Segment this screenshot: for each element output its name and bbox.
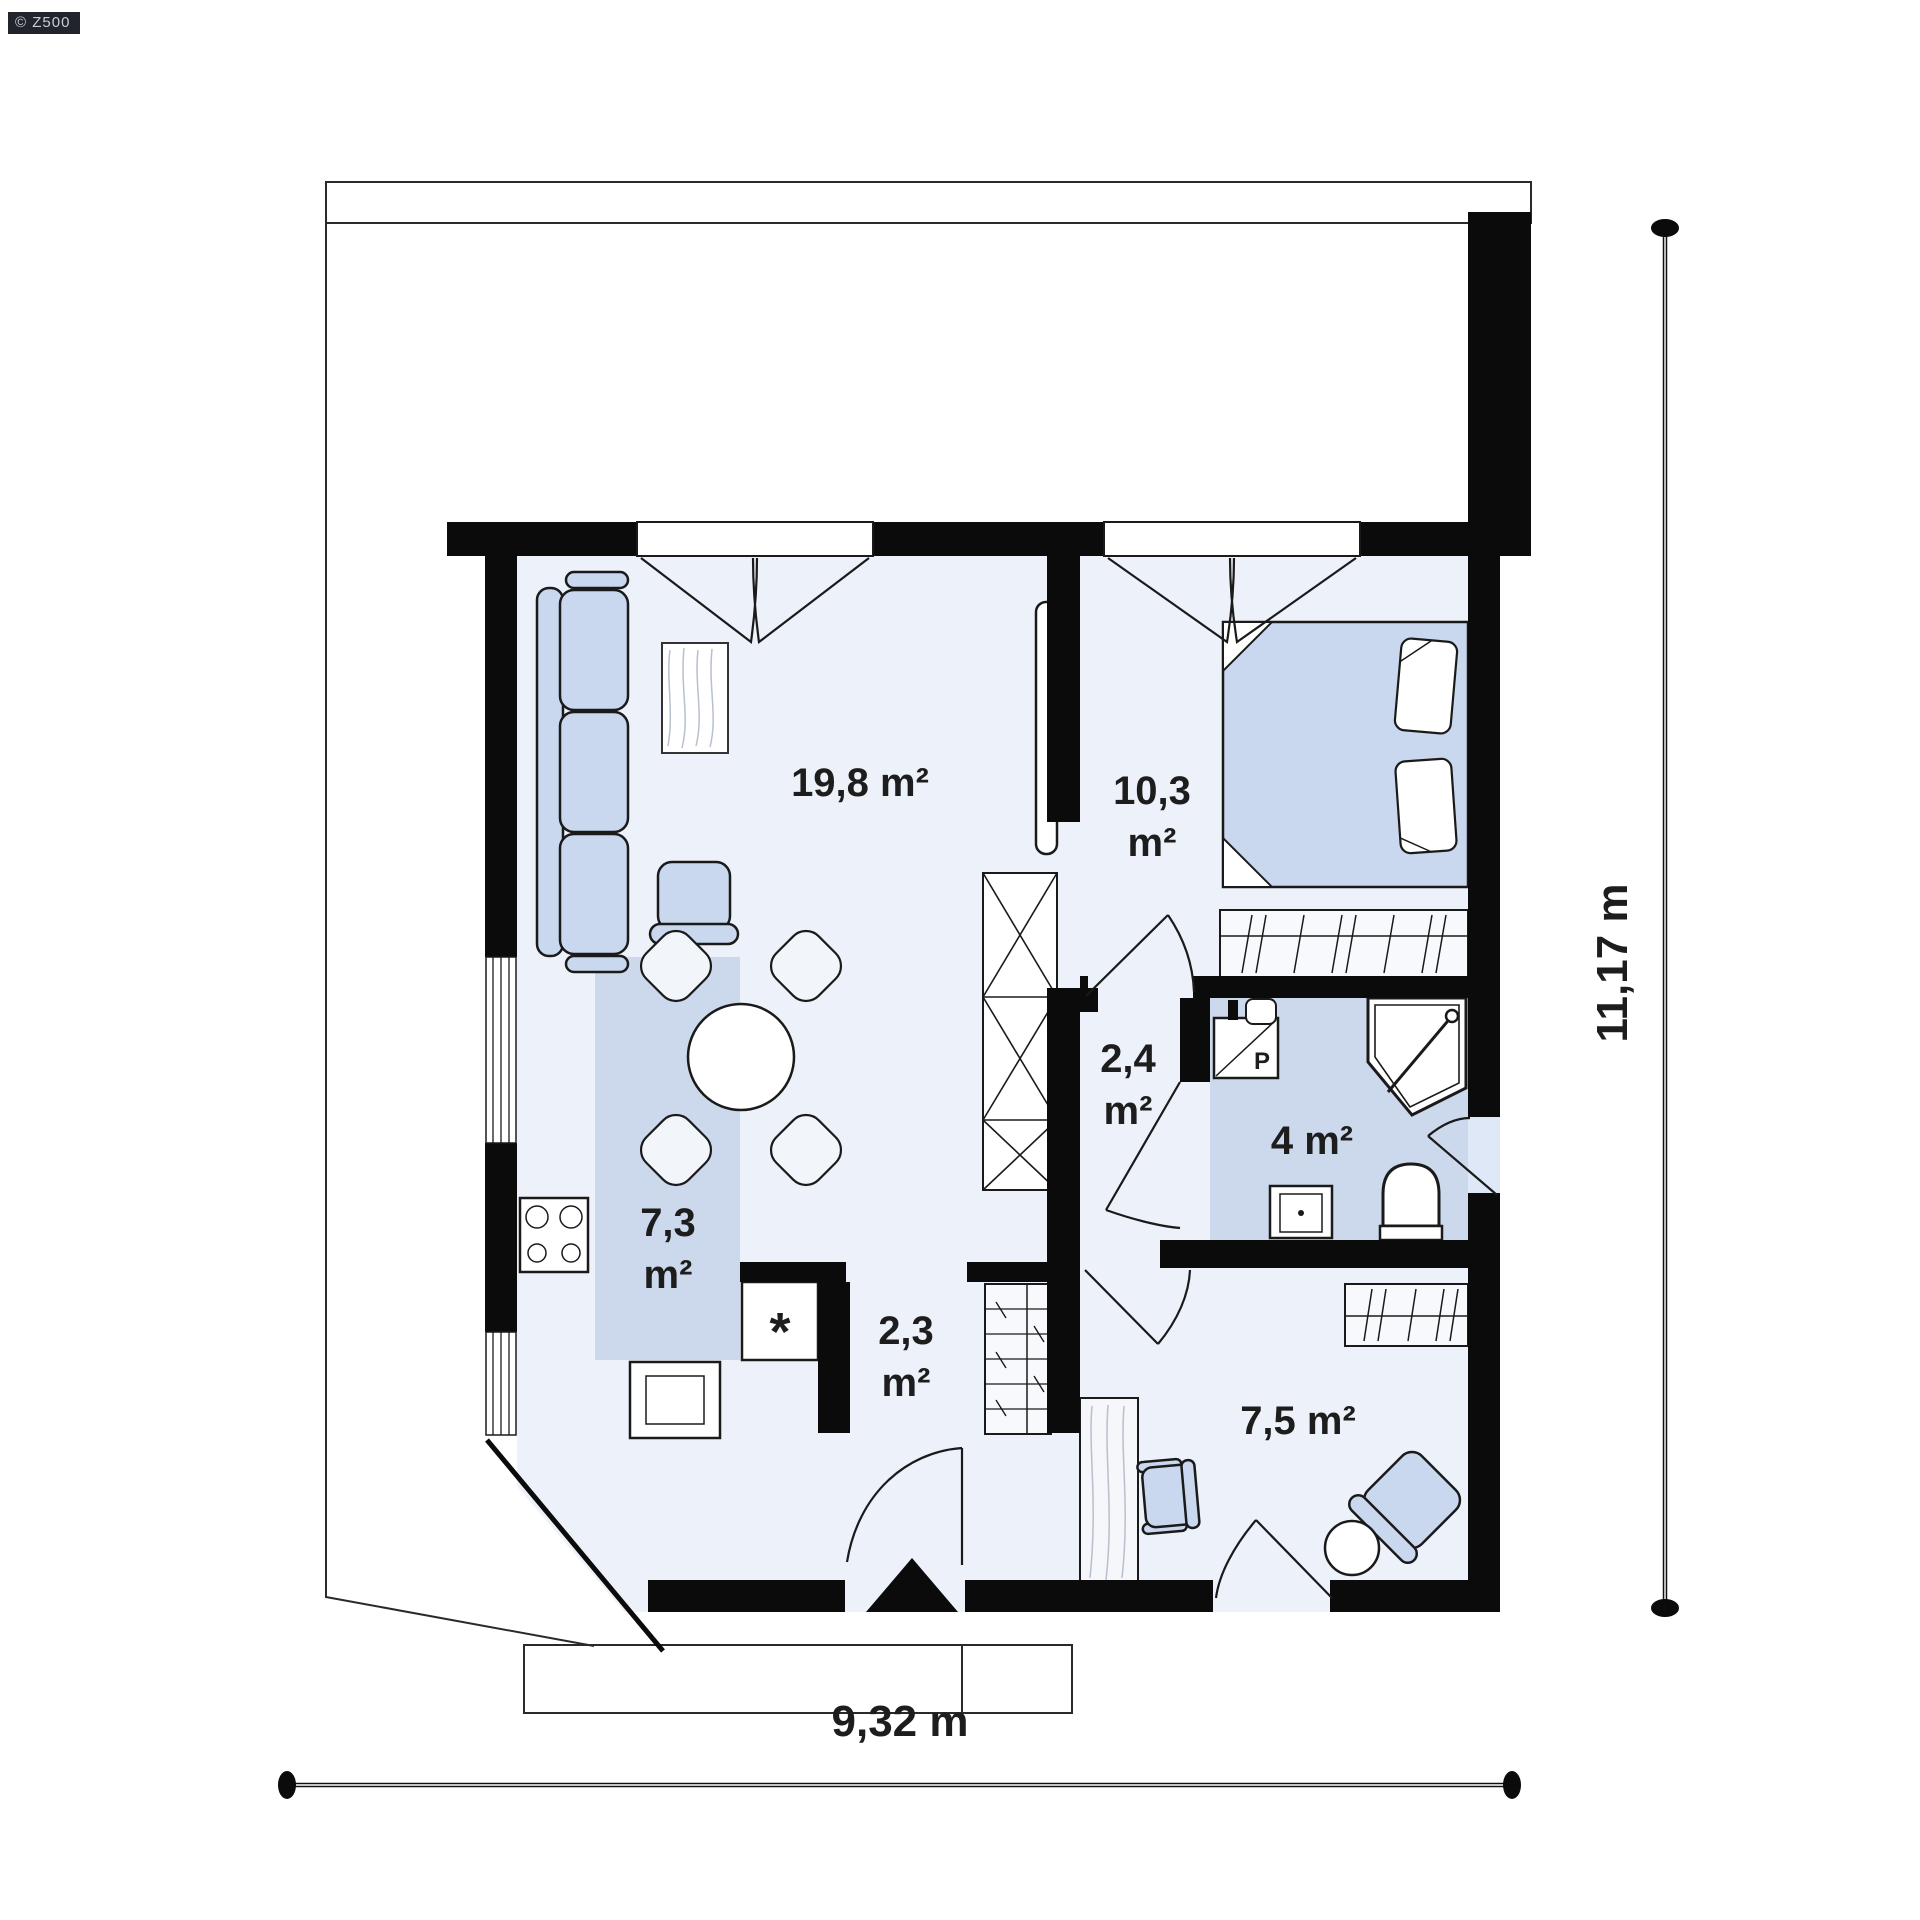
stove bbox=[520, 1198, 588, 1272]
sofa-cushion bbox=[560, 834, 628, 954]
dim-endpoint bbox=[1503, 1771, 1521, 1799]
bathroom-left-wall bbox=[1180, 998, 1210, 1082]
living-area-label: 19,8 m² bbox=[791, 761, 929, 805]
entry-left-wall bbox=[818, 1282, 850, 1433]
bathroom-bottom-wall bbox=[1160, 1240, 1500, 1268]
wardrobe-outline bbox=[1345, 1284, 1468, 1346]
office-chair bbox=[1137, 1458, 1200, 1535]
entry-top-wall-right bbox=[967, 1262, 1080, 1282]
bedroom-wardrobe bbox=[1220, 910, 1468, 978]
shaft bbox=[983, 873, 1057, 1190]
bedroom-bathroom-wall bbox=[1193, 976, 1468, 998]
chimney-wall-block bbox=[1468, 212, 1531, 556]
toilet-tank bbox=[1380, 1226, 1442, 1240]
shower-head bbox=[1446, 1010, 1458, 1022]
office-wardrobe bbox=[1345, 1284, 1468, 1346]
kitchen-area-label-2: m² bbox=[644, 1253, 693, 1297]
office-area-label: 7,5 m² bbox=[1240, 1399, 1356, 1443]
right-wall-upper bbox=[1468, 556, 1500, 1117]
armchair-seat bbox=[658, 862, 730, 930]
shaft-outline bbox=[983, 873, 1057, 1190]
dim-endpoint bbox=[1651, 1599, 1679, 1617]
bottom-wall-mid bbox=[965, 1580, 1213, 1612]
height-dim-label: 11,17 m bbox=[1588, 883, 1637, 1042]
roof-overhang-band bbox=[326, 182, 1531, 223]
bed bbox=[1223, 622, 1468, 887]
width-dim-label: 9,32 m bbox=[832, 1697, 969, 1746]
left-wall-upper bbox=[485, 556, 517, 957]
center-wall-lower bbox=[1047, 1012, 1080, 1433]
side-table bbox=[1325, 1521, 1379, 1575]
bedroom-area-label-1: 10,3 bbox=[1113, 769, 1191, 813]
sofa-armrest-top bbox=[566, 572, 628, 588]
rug bbox=[662, 643, 728, 753]
dim-endpoint bbox=[278, 1771, 296, 1799]
washer-label: P bbox=[1254, 1048, 1270, 1075]
bedroom-area-label-2: m² bbox=[1128, 821, 1177, 865]
armchair bbox=[650, 862, 738, 944]
sofa-cushion bbox=[560, 712, 628, 832]
rug-outline bbox=[662, 643, 728, 753]
kitchen-window-upper bbox=[486, 957, 516, 1143]
left-wall-mid bbox=[485, 1143, 517, 1332]
fridge-star-symbol: * bbox=[769, 1302, 790, 1362]
entry-closet bbox=[985, 1284, 1051, 1434]
dining-table bbox=[688, 1004, 794, 1110]
bottom-wall-right bbox=[1330, 1580, 1500, 1612]
sofa bbox=[537, 572, 628, 972]
bedroom-window bbox=[1104, 522, 1360, 556]
sink-counter bbox=[630, 1362, 720, 1438]
entry-top-wall-left bbox=[740, 1262, 846, 1282]
bottom-wall-left bbox=[648, 1580, 845, 1612]
pillow bbox=[1394, 638, 1458, 735]
faucet bbox=[1228, 1000, 1238, 1020]
bathroom-sink bbox=[1270, 1186, 1332, 1238]
living-window bbox=[637, 522, 873, 556]
entry-area-label-1: 2,3 bbox=[878, 1309, 934, 1353]
sofa-armrest-bottom bbox=[566, 956, 628, 972]
bathroom-doorway-strip bbox=[1468, 1117, 1500, 1193]
small-basin bbox=[1246, 999, 1276, 1024]
kitchen-sink bbox=[630, 1362, 720, 1438]
center-wall-upper bbox=[1047, 556, 1080, 822]
sofa-cushion bbox=[560, 590, 628, 710]
entry-area-label-2: m² bbox=[882, 1361, 931, 1405]
kitchen-window-lower bbox=[486, 1332, 516, 1435]
kitchen-area-label-1: 7,3 bbox=[640, 1201, 696, 1245]
sink-drain bbox=[1298, 1210, 1304, 1216]
toilet-bowl bbox=[1383, 1164, 1439, 1226]
floorplan-drawing: * bbox=[0, 0, 1920, 1920]
hall-area-label-1: 2,4 bbox=[1100, 1037, 1156, 1081]
hall-area-label-2: m² bbox=[1104, 1089, 1153, 1133]
bathroom-area-label: 4 m² bbox=[1271, 1119, 1353, 1163]
desk bbox=[1080, 1398, 1138, 1586]
toilet bbox=[1380, 1164, 1442, 1240]
floorplan-page: © Z500 bbox=[0, 0, 1920, 1920]
fridge: * bbox=[742, 1282, 818, 1362]
dim-endpoint bbox=[1651, 219, 1679, 237]
